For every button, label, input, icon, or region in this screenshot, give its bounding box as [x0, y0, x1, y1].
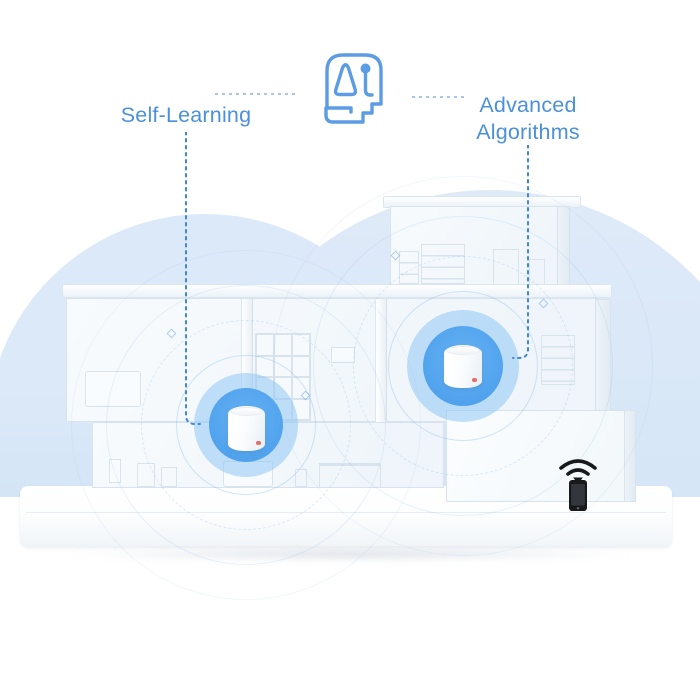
plant-pot — [109, 459, 121, 483]
interior-wall-2 — [375, 299, 387, 423]
stool — [295, 469, 307, 487]
upper-room — [390, 206, 570, 294]
leader-line-left — [176, 132, 206, 438]
chair — [137, 463, 155, 487]
dotted-connector-right — [412, 96, 466, 98]
small-shelf — [399, 251, 419, 284]
chair — [161, 467, 177, 487]
upper-room-side-face — [557, 206, 570, 294]
unit-top-cap — [446, 346, 480, 355]
garage-wall — [446, 410, 636, 502]
wall-art — [331, 347, 355, 363]
garage-side-face — [624, 410, 636, 502]
deco-logo-mark — [472, 378, 477, 382]
wall-shelf — [541, 335, 575, 385]
label-advanced-algorithms: Advanced Algorithms — [458, 92, 598, 146]
sofa-cabinet — [85, 371, 141, 407]
wire-shelf — [421, 244, 465, 284]
label-self-learning: Self-Learning — [106, 102, 266, 129]
ai-head-icon — [310, 48, 400, 142]
client-device — [556, 454, 600, 516]
leader-line-right — [500, 145, 532, 367]
wifi-signal-down-icon — [556, 454, 600, 516]
dining-table — [319, 463, 381, 487]
deco-logo-mark — [256, 441, 261, 445]
unit-top-cap — [230, 407, 263, 416]
smartphone-icon — [569, 480, 587, 511]
dotted-connector-left — [215, 93, 299, 95]
product-hero-image: Self-Learning Advanced Algorithms — [0, 0, 700, 700]
main-floor-side-face — [595, 299, 611, 423]
